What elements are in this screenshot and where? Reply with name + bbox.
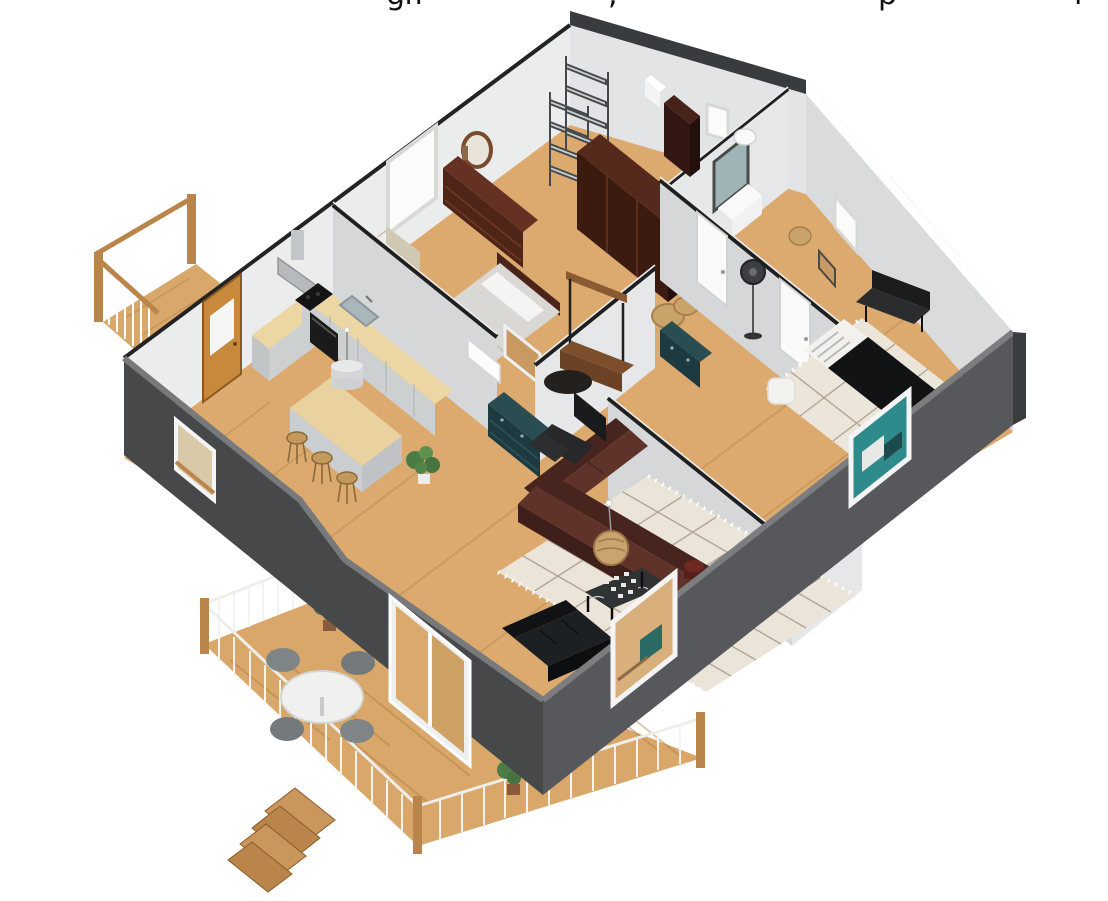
deck-chair — [266, 648, 300, 672]
hood-chimney — [291, 230, 304, 260]
pouf — [768, 378, 795, 404]
deck-post — [200, 598, 209, 654]
toilet — [734, 129, 756, 145]
balcony-handrail — [96, 198, 192, 254]
round-rug — [544, 370, 592, 394]
floor-plan-canvas — [0, 0, 1108, 901]
laundry-basket — [789, 227, 811, 245]
balcony-handrail-side — [99, 260, 158, 313]
deck-stairs — [228, 788, 335, 892]
balcony-post — [94, 252, 103, 322]
balcony-post — [187, 194, 196, 264]
deck-chair — [340, 719, 374, 743]
east-corner-edge — [1013, 332, 1026, 425]
floor-plan-render: gff,pl — [0, 0, 1108, 901]
deck-chair — [270, 717, 304, 741]
deck-post — [696, 712, 705, 768]
deck-chair — [341, 651, 375, 675]
deck-post — [413, 796, 422, 854]
vase — [462, 146, 468, 160]
bathroom-window — [707, 104, 728, 140]
